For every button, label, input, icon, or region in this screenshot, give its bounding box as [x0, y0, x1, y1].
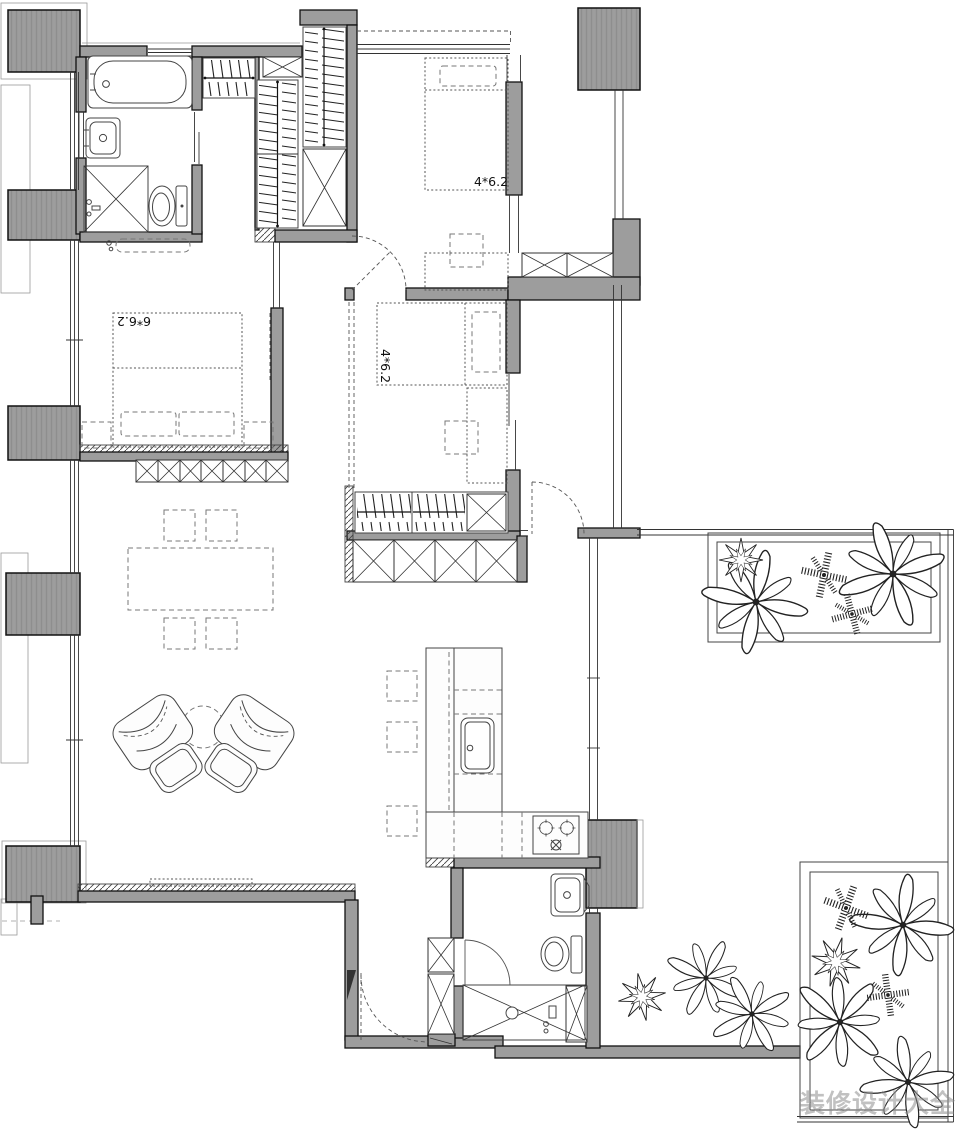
dimension-label-master: 6*6.2	[117, 314, 151, 329]
pillow	[472, 312, 500, 372]
palm-plant	[650, 504, 960, 1133]
chair	[164, 510, 195, 541]
bedroom-master: 6*6.2	[82, 313, 273, 448]
nightstand	[82, 422, 111, 448]
pillow	[179, 412, 234, 436]
counter	[426, 812, 588, 858]
stool	[387, 806, 417, 836]
side-unit	[467, 388, 507, 483]
toilet-bath2	[541, 936, 582, 973]
plants	[614, 504, 960, 1133]
floor-plan: 4*6.2 6*6.2 4*6.2	[0, 0, 960, 1133]
shower-bath1	[84, 166, 148, 232]
pillow	[121, 412, 176, 436]
sink-bath1	[84, 118, 120, 158]
desk	[450, 234, 483, 267]
chair	[164, 618, 195, 649]
door-terrace	[532, 482, 584, 534]
sink-bath2	[551, 874, 589, 916]
corridor-xbox	[263, 57, 302, 77]
pillow	[440, 66, 496, 86]
lounge-area	[108, 689, 300, 886]
bedroom-middle: 4*6.2	[349, 302, 507, 488]
column	[8, 10, 80, 72]
cabinet-row-master	[136, 460, 288, 482]
dimension-label-bedroom1: 4*6.2	[474, 174, 508, 189]
nightstand	[244, 422, 273, 448]
kitchen	[387, 648, 588, 858]
dimension-label-middle: 4*6.2	[378, 349, 393, 383]
chair	[206, 618, 237, 649]
closet-bedroom-middle	[355, 492, 508, 533]
dining-table	[128, 548, 273, 610]
bedroom-top-right: 4*6.2	[352, 58, 508, 290]
chair	[206, 510, 237, 541]
stool	[387, 722, 417, 752]
desk	[445, 421, 478, 454]
cabinet-row-living	[353, 540, 517, 582]
dining-area	[128, 510, 273, 649]
wardrobe-bedroom-top	[303, 27, 346, 226]
bathroom-top	[84, 56, 192, 252]
entry-closet	[428, 938, 454, 1034]
watermark: 装修设计大全	[800, 1089, 956, 1118]
coat-closet	[203, 58, 255, 98]
stool	[387, 671, 417, 701]
floor-plan-page: 4*6.2 6*6.2 4*6.2	[0, 0, 960, 1133]
door-entry	[361, 973, 428, 1042]
wardrobe-corridor	[257, 80, 298, 228]
bath2-cabinet	[566, 986, 587, 1042]
rug	[425, 253, 508, 290]
bathtub	[88, 56, 192, 108]
toilet-bath1	[149, 186, 187, 226]
kitchen-sink	[461, 718, 494, 773]
cabinet-row-bedroom1	[522, 253, 613, 277]
door-bath2	[465, 940, 510, 985]
door-bedroom1	[352, 236, 406, 290]
terrace	[614, 504, 960, 1133]
